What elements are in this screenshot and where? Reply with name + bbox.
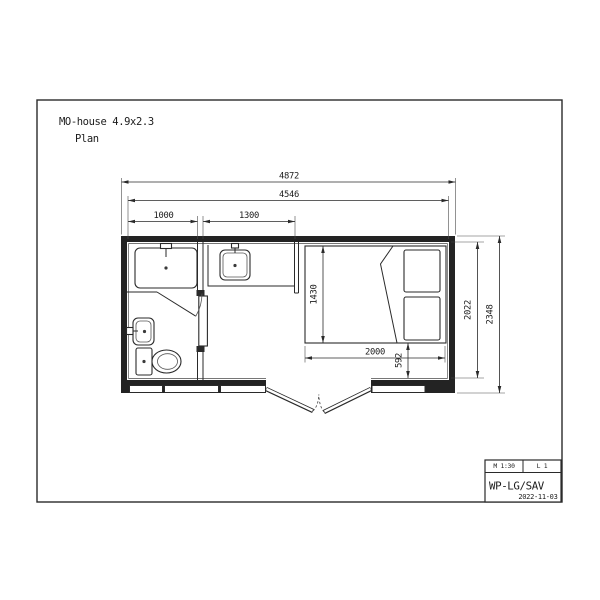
window-bedroom <box>372 386 425 393</box>
title-block-date: 2022-11-03 <box>518 493 557 501</box>
kitchen-sink <box>208 244 295 287</box>
title-block-sheet: L 1 <box>537 462 548 470</box>
dim-kitchen-width: 1300 <box>239 211 259 221</box>
pillow-top <box>404 250 440 292</box>
title-block-code: WP-LG/SAV <box>489 480 545 493</box>
door-leaf-left <box>267 389 313 411</box>
wall-top <box>121 236 455 242</box>
washbasin-drain <box>143 330 146 333</box>
bed <box>305 246 446 343</box>
partition-lower <box>198 352 204 380</box>
drawing-subtitle: Plan <box>75 133 99 145</box>
washbasin-faucet <box>127 328 134 335</box>
window-hall-1 <box>165 386 219 393</box>
dim-bed-to-wall: 592 <box>395 353 405 368</box>
wall-left <box>121 236 127 393</box>
shower-door-leaf <box>157 292 196 316</box>
sink-faucet <box>232 244 239 249</box>
dim-bathroom-width: 1000 <box>154 211 174 221</box>
bathtub-drain <box>164 266 167 269</box>
dim-inner-depth: 2022 <box>464 300 474 320</box>
floor-plan-svg: MO-house 4.9x2.3 Plan <box>0 0 600 600</box>
bathtub <box>135 244 197 289</box>
partition-upper <box>198 242 204 290</box>
shower-door <box>127 292 202 316</box>
window-hall-2 <box>221 386 266 393</box>
door-leaf-right <box>325 389 371 412</box>
dim-inner-width: 4546 <box>279 190 299 200</box>
bathroom-door-leaf <box>199 296 208 346</box>
wall-right <box>449 236 455 393</box>
window-bath <box>130 386 163 393</box>
toilet <box>136 348 181 375</box>
dim-bed-width: 1430 <box>310 285 320 305</box>
title-block: M 1:30 L 1 WP-LG/SAV 2022-11-03 <box>485 460 561 502</box>
door-swing-right <box>319 395 324 413</box>
entrance-doors <box>266 389 371 412</box>
washbasin <box>127 318 155 345</box>
toilet-button <box>142 360 145 363</box>
dim-bed-length: 2000 <box>365 348 385 358</box>
title-block-scale: M 1:30 <box>493 462 515 470</box>
door-jamb-bottom <box>197 346 205 352</box>
door-jamb-top <box>197 290 205 296</box>
drawing-sheet: MO-house 4.9x2.3 Plan <box>0 0 600 600</box>
pillow-bottom <box>404 297 440 340</box>
sheet-border <box>37 100 562 502</box>
sink-drain <box>233 264 236 267</box>
dim-overall-width: 4872 <box>279 172 299 182</box>
drawing-title: MO-house 4.9x2.3 <box>59 116 154 128</box>
bathtub-faucet <box>161 244 172 249</box>
door-swing-left <box>313 395 319 412</box>
stub-wall <box>295 242 299 293</box>
dim-overall-depth: 2348 <box>486 305 496 325</box>
